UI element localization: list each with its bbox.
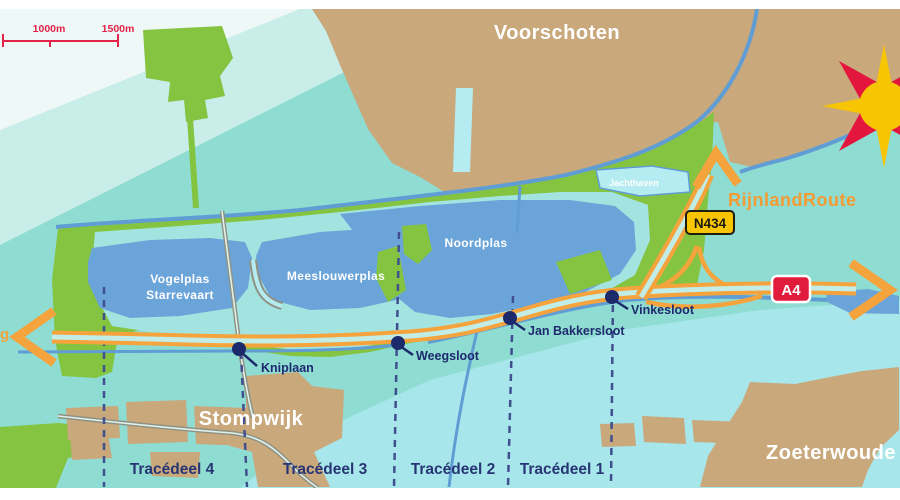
badge-n434-label: N434 xyxy=(694,216,727,231)
place-label-stompwijk: Stompwijk xyxy=(199,408,304,430)
place-label-zoeterwoude: Zoeterwoude xyxy=(766,442,896,464)
edge-text-fragment: g xyxy=(0,326,9,343)
waypoint-label-vinkesloot: Vinkesloot xyxy=(631,303,695,317)
route-label-rijnlandroute: RijnlandRoute xyxy=(728,190,857,210)
waypoint-dot-jan-bakkersloot xyxy=(503,311,517,325)
top-margin xyxy=(0,0,900,9)
lake-label-meeslouwerplas: Meeslouwerplas xyxy=(287,269,385,283)
scale-label-1500: 1500m xyxy=(102,23,135,35)
badge-a4: A4 xyxy=(772,276,810,302)
section-label-tracedeel-4: Tracédeel 4 xyxy=(130,461,215,478)
waypoint-dot-vinkesloot xyxy=(605,290,619,304)
lake-label-vogelplas-line2: Starrevaart xyxy=(146,288,214,302)
map-svg: Kniplaan Weegsloot Jan Bakkersloot Vinke… xyxy=(0,0,900,500)
waypoint-label-jan-bakkersloot: Jan Bakkersloot xyxy=(528,324,625,338)
lake-label-vogelplas-line1: Vogelplas xyxy=(150,272,209,286)
section-label-tracedeel-3: Tracédeel 3 xyxy=(283,461,368,478)
badge-a4-label: A4 xyxy=(781,282,801,299)
channel-through-town xyxy=(453,88,473,172)
map-stage: Kniplaan Weegsloot Jan Bakkersloot Vinke… xyxy=(0,0,900,500)
section-label-tracedeel-1: Tracédeel 1 xyxy=(520,461,605,478)
waypoint-label-weegsloot: Weegsloot xyxy=(416,349,480,363)
label-jachthaven: Jachthaven xyxy=(609,178,659,188)
place-label-voorschoten: Voorschoten xyxy=(494,22,620,44)
waypoint-dot-kniplaan xyxy=(232,342,246,356)
bottom-margin xyxy=(0,488,900,500)
waypoint-label-kniplaan: Kniplaan xyxy=(261,361,314,375)
badge-n434: N434 xyxy=(686,211,734,234)
waypoint-dot-weegsloot xyxy=(391,336,405,350)
section-label-tracedeel-2: Tracédeel 2 xyxy=(411,461,495,478)
lake-label-noordplas: Noordplas xyxy=(445,236,508,250)
scale-label-1000: 1000m xyxy=(33,23,66,35)
